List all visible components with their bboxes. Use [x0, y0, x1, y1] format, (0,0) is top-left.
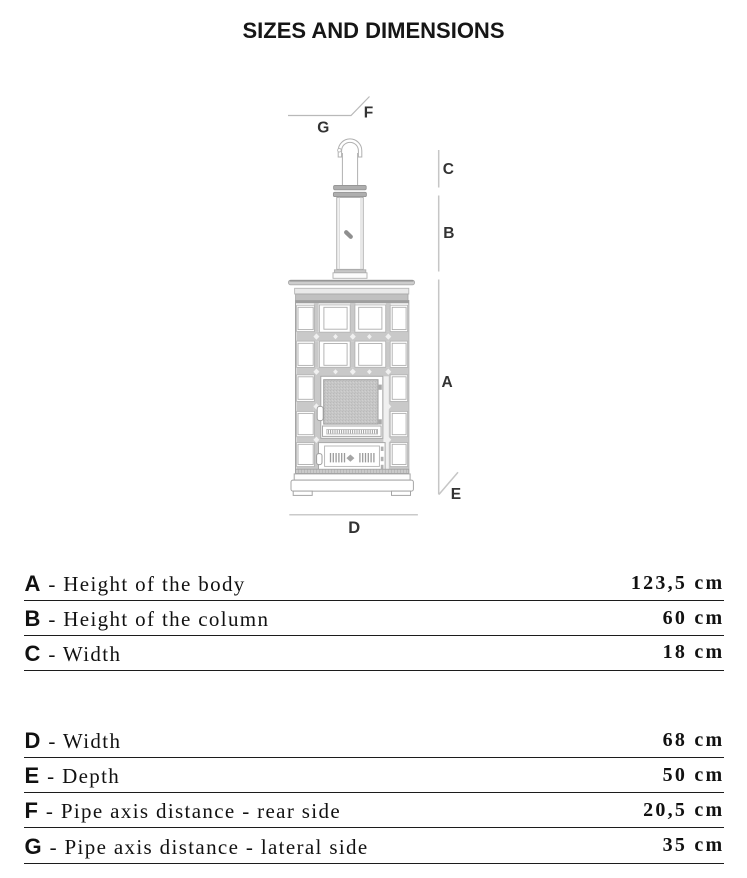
svg-text:B: B: [443, 225, 454, 242]
svg-text:A: A: [442, 374, 453, 391]
svg-text:E: E: [451, 486, 461, 503]
svg-text:G: G: [317, 120, 329, 137]
svg-text:D: D: [348, 519, 360, 537]
svg-text:C: C: [443, 161, 454, 178]
svg-text:F: F: [364, 105, 373, 122]
